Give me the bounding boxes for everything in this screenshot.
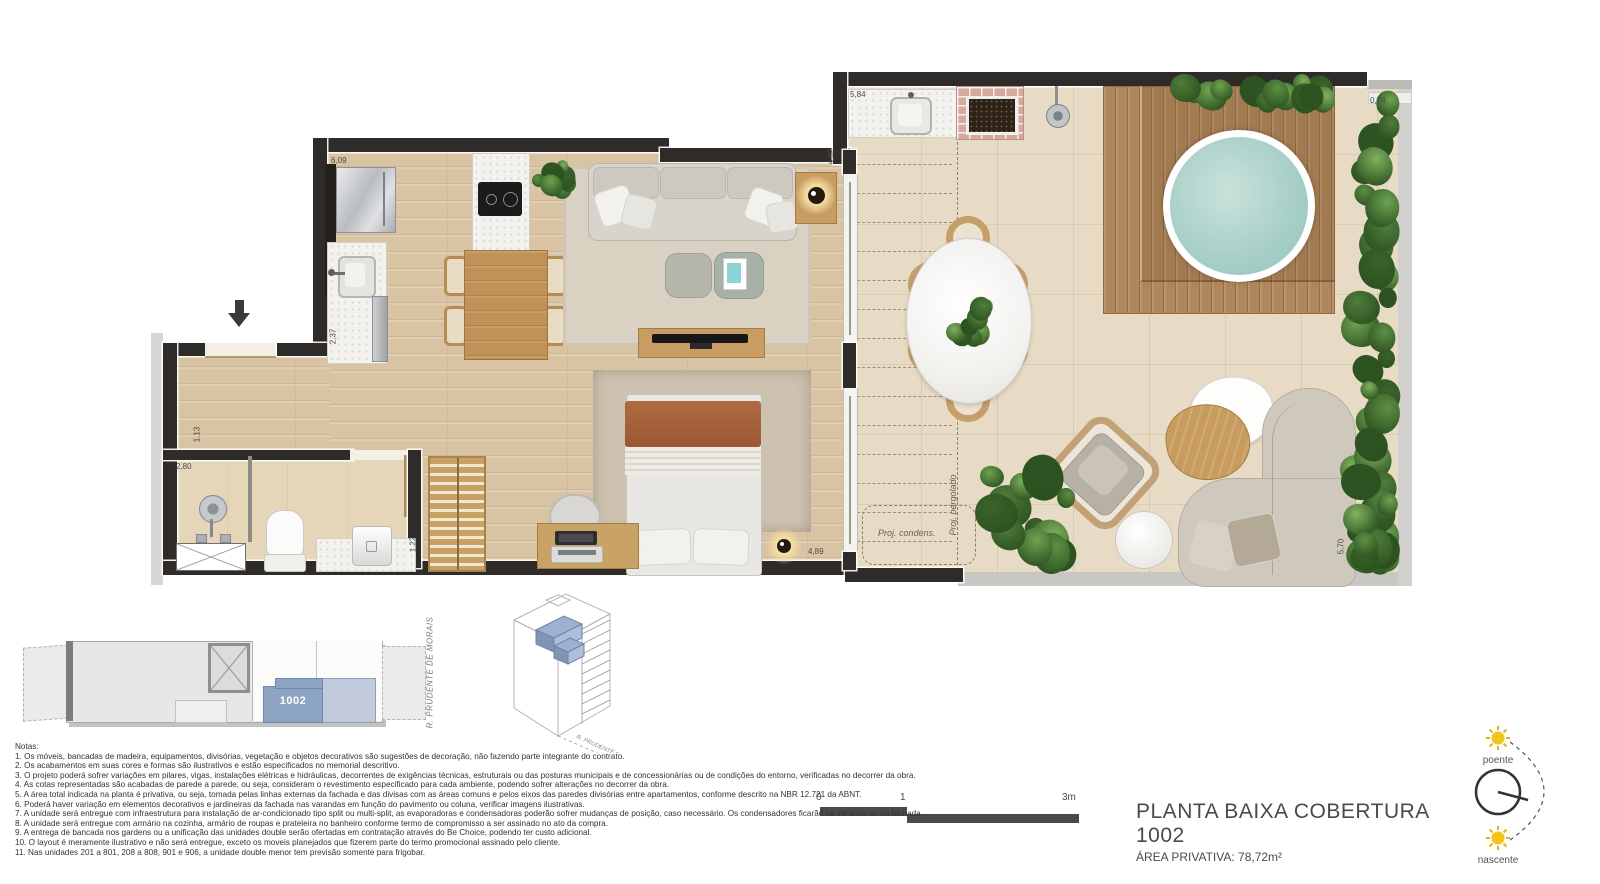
dim-kitchen-top: 6,09: [331, 156, 347, 165]
bed-throw: [625, 447, 761, 475]
leaf: [1378, 287, 1398, 309]
bed: [626, 394, 762, 576]
floor-plan-sheet: Proj. condens. Proj. pergolado 6,09 2,37…: [0, 0, 1600, 884]
axonometric-diagram: R. PRUDENTE DE MORAIS: [492, 578, 667, 753]
dim-planter-top: 0,74: [1370, 96, 1386, 105]
note-line: 1. Os móveis, bancadas de madeira, equip…: [15, 752, 1560, 762]
refrigerator: [336, 167, 396, 233]
cooktop: [478, 182, 522, 216]
dash-row: [852, 425, 952, 426]
leaf: [1057, 488, 1076, 509]
bath-sink: [352, 526, 392, 566]
dim-terrace-side: 5,70: [1337, 532, 1346, 562]
note-line: 11. Nas unidades 201 a 801, 208 a 808, 9…: [15, 848, 1560, 858]
key-plan-core-dark-edge: [66, 641, 73, 721]
pool: [1163, 130, 1315, 282]
wall-bottom-terrace-left: [845, 568, 963, 582]
tv: [652, 334, 748, 343]
dining-table: [464, 250, 548, 360]
key-plan-right-wing: [382, 646, 426, 720]
leaf: [970, 297, 993, 322]
notes-block: Notas: 1. Os móveis, bancadas de madeira…: [15, 742, 1560, 857]
leaf: [1378, 115, 1400, 140]
bbq-sink: [890, 97, 932, 135]
wall-top-living: [660, 148, 850, 162]
wardrobe: [428, 456, 486, 572]
dash-row: [852, 164, 952, 165]
note-line: 9. A entrega de bancada nos gardens ou a…: [15, 828, 1560, 838]
key-plan-unit-partition: [316, 641, 317, 681]
table-centerpiece-plant: [942, 294, 994, 346]
key-plan-elevator: [208, 643, 250, 693]
dim-living-door: 4,92: [827, 142, 836, 172]
dim-hall: 1,13: [193, 420, 202, 450]
bed-pillow: [692, 528, 749, 566]
toilet: [264, 510, 304, 572]
shower-valve: [196, 534, 207, 543]
dash-row: [852, 193, 952, 194]
key-plan-lower-room: [175, 700, 227, 723]
dash-row: [852, 483, 952, 484]
dim-bath-vanity: 1,22: [409, 530, 418, 560]
note-line: 4. As cotas representadas são acabadas d…: [15, 780, 1560, 790]
shower-head: [199, 495, 227, 523]
outdoor-shower-head: [1046, 104, 1070, 128]
laptop: [555, 531, 597, 545]
shower-partition-glass: [248, 456, 252, 542]
dim-bath: 2,80: [176, 462, 192, 471]
key-plan-street-label: R. PRUDENTE DE MORAIS: [426, 603, 435, 743]
dash-row: [852, 454, 952, 455]
wall-boundary-mid: [843, 343, 856, 388]
note-line: 3. O projeto poderá sofrer variações em …: [15, 771, 1560, 781]
outdoor-shower-arm: [1055, 86, 1058, 106]
note-line: 5. A área total indicada na planta é pri…: [15, 790, 1560, 800]
exterior-band-left: [151, 333, 163, 585]
note-line: 8. A unidade será entregue com armário n…: [15, 819, 1560, 829]
nightstand-lamp-shade: [777, 539, 791, 553]
note-line: 6. Poderá haver variação em elementos de…: [15, 800, 1560, 810]
bedroom-sliding-door: [843, 388, 858, 552]
note-line: 2. Os acabamentos em suas cores e formas…: [15, 761, 1560, 771]
floor-lamp-shade: [808, 187, 825, 204]
wall-hall-top-right: [277, 343, 327, 356]
living-sliding-door: [843, 174, 858, 343]
notes-heading: Notas:: [15, 742, 1560, 752]
dash-row: [852, 396, 952, 397]
hedge-pool-top: [1158, 74, 1336, 112]
key-plan-unit-1002-step: [275, 678, 323, 689]
note-line: 7. A unidade será entregue com infraestr…: [15, 809, 1560, 819]
wall-top-kitchen: [313, 138, 669, 152]
key-plan-unit-adjacent: [318, 678, 376, 723]
pergolado-label: Proj. pergolado: [948, 455, 958, 555]
wall-boundary-bottom: [843, 552, 856, 570]
shaft-box: [176, 543, 246, 571]
tv-stand: [690, 343, 712, 349]
bathroom-door-opening: [350, 450, 408, 460]
laptop-keyboard: [551, 546, 603, 563]
side-table-marble: [1115, 511, 1173, 569]
shower-pipe: [210, 519, 213, 537]
magazine: [723, 258, 747, 290]
ottoman: [665, 253, 712, 298]
dash-row: [852, 222, 952, 223]
dim-kitchen-counter: 2,37: [329, 322, 338, 352]
floor-lamp-dot: [811, 191, 816, 196]
shower-valve: [220, 534, 231, 543]
bed-blanket: [625, 401, 761, 447]
note-line: 10. O layout é meramente ilustrativo e n…: [15, 838, 1560, 848]
hedge-right: [1340, 84, 1402, 574]
dim-terrace-top: 5,84: [850, 90, 866, 99]
nightstand-lamp-dot: [780, 542, 784, 546]
palm-plant: [968, 452, 1078, 572]
kitchen-sink: [338, 256, 376, 298]
bed-pillow: [634, 528, 691, 566]
plant-kitchen-island: [531, 158, 577, 202]
key-plan-unit-label: 1002: [272, 695, 314, 707]
notes-list: 1. Os móveis, bancadas de madeira, equip…: [15, 752, 1560, 858]
bbq-grill: [956, 86, 1024, 140]
wall-bathroom-top: [163, 450, 353, 460]
wall-boundary-top: [843, 150, 856, 174]
key-plan: 1002: [20, 638, 440, 733]
sofa: [588, 163, 797, 241]
entry-door-opening: [205, 343, 277, 358]
kitchen-oven: [372, 296, 388, 362]
condenser-label: Proj. condens.: [878, 528, 936, 538]
bathroom-door-leaf: [404, 455, 407, 517]
dim-bedroom-door: 4,89: [808, 547, 824, 556]
